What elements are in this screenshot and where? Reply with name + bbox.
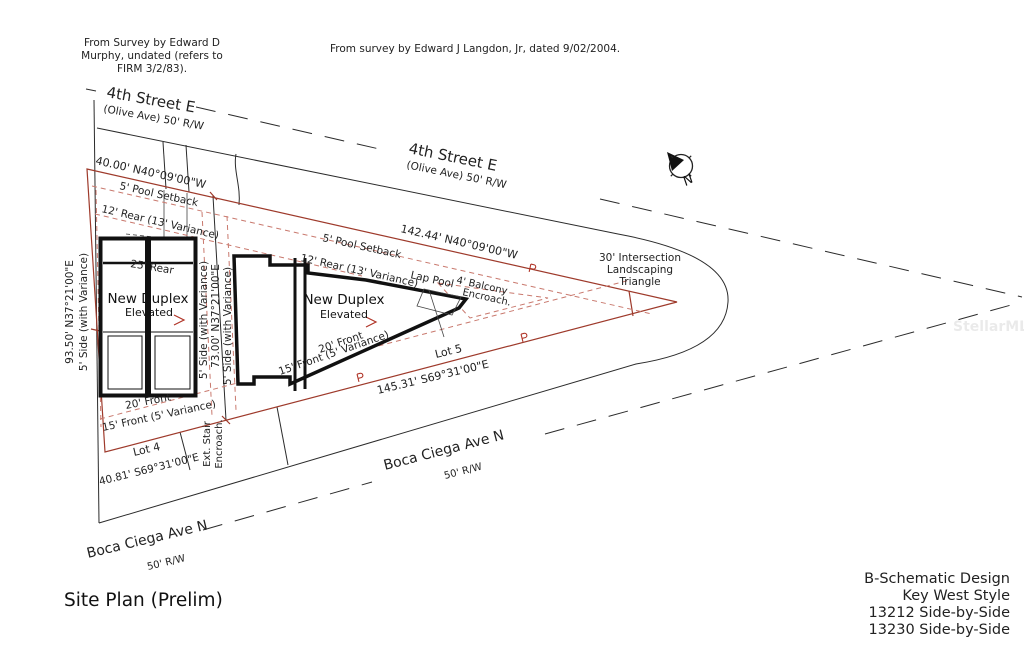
side-setback-label-west: 5' Side (with Variance) bbox=[78, 253, 90, 371]
survey-note-1-line-3: FIRM 3/2/83). bbox=[117, 63, 187, 75]
site-plan-page: From Survey by Edward D Murphy, undated … bbox=[0, 0, 1024, 669]
dim-93ft-bearing: 93.50' N37°21'00"E bbox=[64, 260, 76, 364]
dim-142ft-bearing: 142.44' N40°09'00"W bbox=[399, 222, 519, 262]
street-boca-rw-bottom: 50' R/W bbox=[146, 553, 186, 573]
footer-line-3: 13212 Side-by-Side bbox=[869, 605, 1011, 621]
left-building-subtitle: Elevated bbox=[125, 306, 173, 319]
north-letter: N bbox=[681, 171, 697, 189]
side-setback-label-lot4-east: 5' Side (with Variance) bbox=[198, 261, 210, 379]
survey-note-1-line-1: From Survey by Edward D bbox=[84, 37, 220, 49]
ext-stair-label-2: Encroach. bbox=[214, 419, 225, 468]
north-arrow-icon: N bbox=[667, 152, 697, 189]
middle-building-name: New Duplex bbox=[303, 292, 384, 308]
page-title: Site Plan (Prelim) bbox=[64, 590, 223, 611]
lot4-label: Lot 4 bbox=[132, 440, 162, 459]
dim-40ft-bearing: 40.00' N40°09'00"W bbox=[94, 154, 207, 191]
landscaping-triangle-label-2: Landscaping bbox=[607, 264, 673, 276]
footer-line-4: 13230 Side-by-Side bbox=[869, 622, 1011, 638]
street-boca-rw-center: 50' R/W bbox=[443, 461, 483, 481]
survey-note-2: From survey by Edward J Langdon, Jr, dat… bbox=[330, 43, 620, 55]
landscaping-triangle-label-1: 30' Intersection bbox=[599, 252, 681, 264]
street-boca-label-center: Boca Ciega Ave N bbox=[382, 427, 506, 473]
lot5-label: Lot 5 bbox=[434, 342, 464, 361]
pool-setback-label-lot5: 5' Pool Setback bbox=[321, 232, 403, 261]
street-boca-label-bottom: Boca Ciega Ave N bbox=[85, 517, 209, 561]
survey-note-1-line-2: Murphy, undated (refers to bbox=[81, 50, 223, 62]
watermark: StellarMLS bbox=[953, 319, 1024, 335]
footer-line-1: B-Schematic Design bbox=[864, 571, 1010, 587]
middle-building-subtitle: Elevated bbox=[320, 308, 368, 321]
landscaping-triangle-label-3: Triangle bbox=[618, 276, 660, 288]
dim-145ft-bearing: 145.31' S69°31'00"E bbox=[376, 358, 490, 397]
ext-stair-label-1: Ext. Stair bbox=[202, 420, 213, 467]
site-plan-drawing: From Survey by Edward D Murphy, undated … bbox=[0, 0, 1024, 669]
footer-line-2: Key West Style bbox=[902, 588, 1010, 604]
dim-73ft-bearing: 73.00' N37°21'00"E bbox=[210, 264, 222, 368]
side-setback-label-lot5-west: 5' Side (with Variance) bbox=[222, 267, 234, 385]
dim-40-81ft-bearing: 40.81' S69°31'00"E bbox=[98, 451, 200, 487]
left-building-name: New Duplex bbox=[107, 291, 188, 307]
